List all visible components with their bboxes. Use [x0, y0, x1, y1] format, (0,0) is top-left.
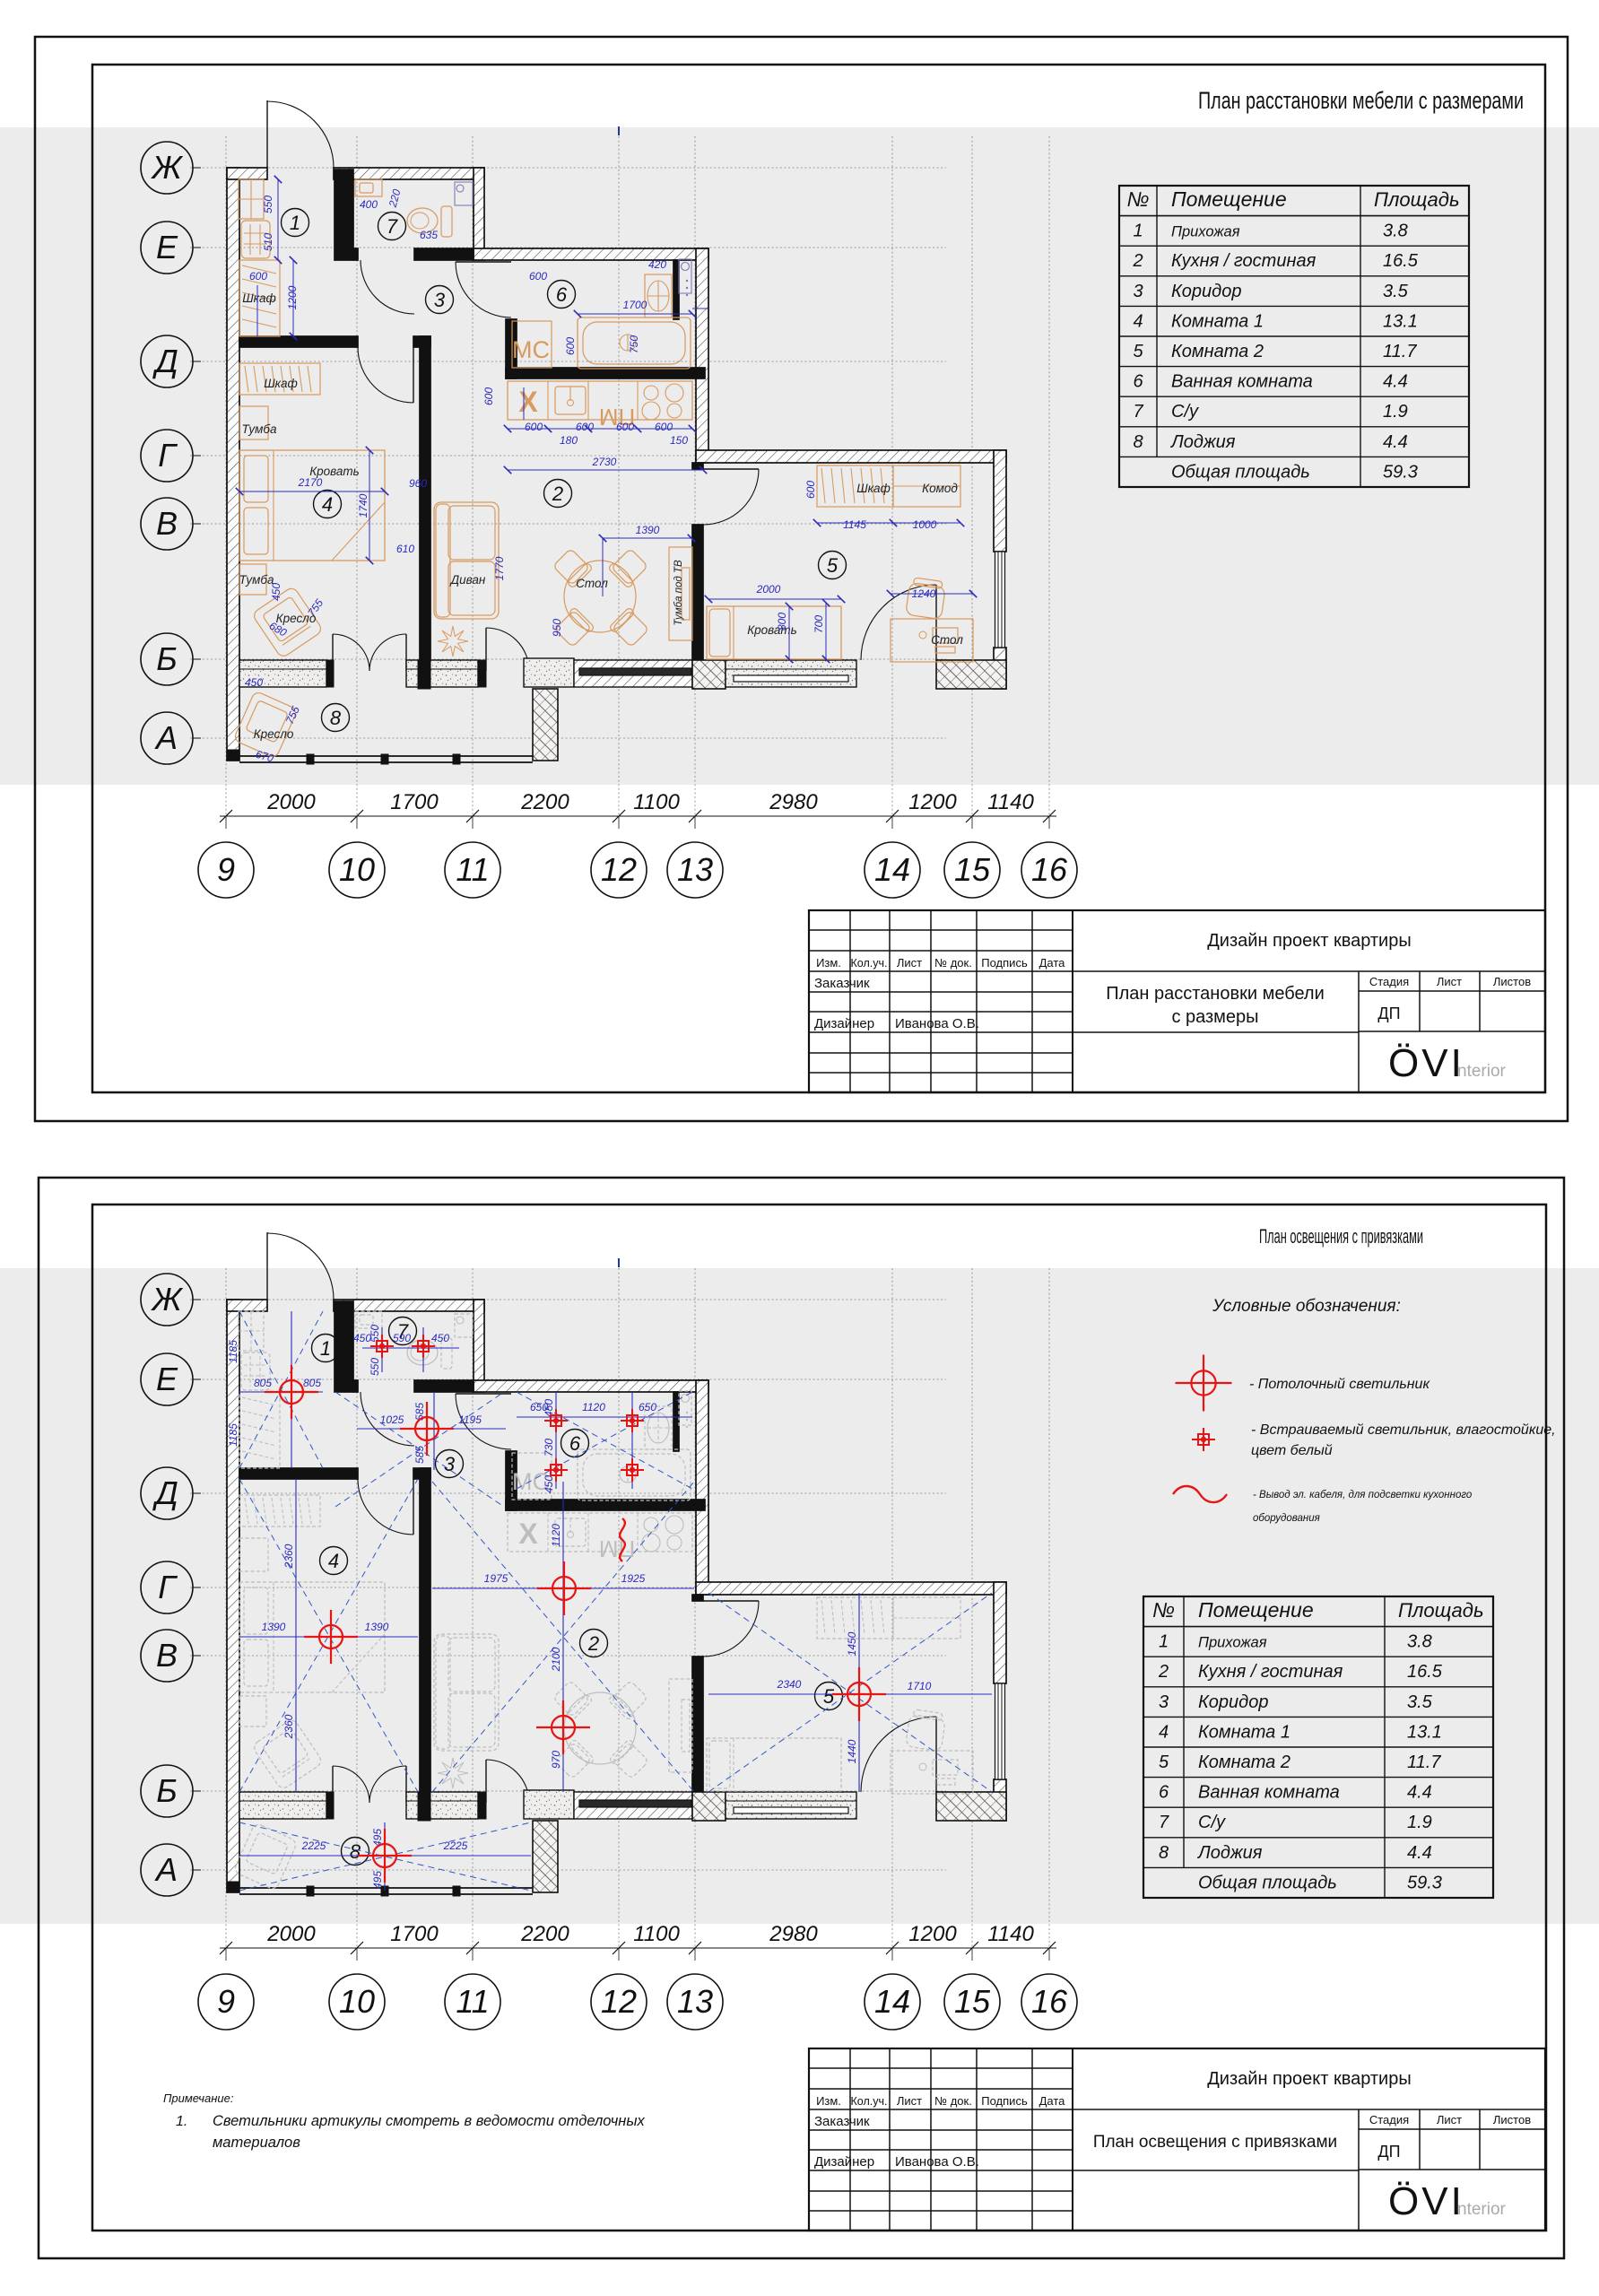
svg-text:Комната 2: Комната 2	[1171, 342, 1264, 361]
svg-text:Дизайн проект квартиры: Дизайн проект квартиры	[1207, 931, 1411, 951]
svg-text:3: 3	[434, 289, 446, 311]
svg-text:Общая площадь: Общая площадь	[1171, 462, 1310, 482]
svg-text:3.5: 3.5	[1383, 282, 1409, 301]
svg-text:2000: 2000	[266, 1922, 316, 1946]
svg-text:2360: 2360	[282, 1544, 295, 1569]
svg-text:Кухня / гостиная: Кухня / гостиная	[1198, 1662, 1343, 1682]
svg-text:450: 450	[543, 1475, 555, 1493]
svg-text:4: 4	[1133, 311, 1143, 331]
svg-text:Листов: Листов	[1493, 2113, 1531, 2126]
svg-text:Кол.уч.: Кол.уч.	[851, 957, 888, 970]
svg-text:Е: Е	[156, 1361, 178, 1397]
svg-text:1: 1	[320, 1337, 331, 1360]
svg-text:Общая площадь: Общая площадь	[1198, 1873, 1337, 1892]
svg-text:2730: 2730	[592, 456, 617, 468]
svg-text:ÖVI: ÖVI	[1388, 1041, 1464, 1085]
svg-text:А: А	[154, 719, 178, 756]
svg-text:2980: 2980	[769, 1922, 818, 1946]
svg-text:Шкаф: Шкаф	[242, 291, 276, 305]
svg-text:1390: 1390	[636, 524, 660, 536]
svg-text:180: 180	[560, 434, 578, 447]
svg-text:Лист: Лист	[897, 2094, 922, 2108]
svg-text:1.9: 1.9	[1407, 1813, 1432, 1832]
svg-text:Б: Б	[156, 1772, 177, 1809]
svg-text:805: 805	[303, 1377, 321, 1389]
svg-text:1185: 1185	[227, 1423, 239, 1447]
svg-text:1100: 1100	[633, 790, 680, 814]
svg-text:Примечание:: Примечание:	[163, 2092, 234, 2105]
svg-text:3: 3	[1159, 1692, 1169, 1712]
svg-text:1200: 1200	[286, 285, 299, 309]
svg-text:550: 550	[369, 1325, 381, 1343]
svg-text:7: 7	[1133, 402, 1143, 422]
svg-text:Прихожая: Прихожая	[1198, 1635, 1267, 1651]
svg-text:Подпись: Подпись	[981, 956, 1028, 970]
svg-text:С/у: С/у	[1198, 1813, 1226, 1832]
svg-text:№: №	[1127, 187, 1150, 211]
svg-text:Коридор: Коридор	[1198, 1692, 1268, 1712]
svg-text:635: 635	[420, 229, 438, 241]
svg-text:600: 600	[804, 481, 817, 499]
svg-text:Д: Д	[152, 343, 178, 379]
svg-text:2000: 2000	[756, 583, 781, 596]
svg-text:4.4: 4.4	[1407, 1783, 1432, 1803]
svg-text:16.5: 16.5	[1407, 1662, 1443, 1682]
svg-text:Заказчик: Заказчик	[814, 976, 870, 991]
svg-text:1740: 1740	[357, 493, 369, 517]
svg-text:Помещение: Помещение	[1198, 1598, 1314, 1622]
svg-text:6: 6	[1159, 1783, 1169, 1803]
svg-text:Площадь: Площадь	[1398, 1599, 1484, 1622]
svg-text:1120: 1120	[582, 1401, 605, 1413]
svg-text:1.: 1.	[176, 2114, 187, 2129]
svg-text:9: 9	[217, 1983, 235, 2020]
svg-text:12: 12	[601, 1983, 637, 2020]
svg-text:План освещения с привязками: План освещения с привязками	[1259, 1225, 1423, 1248]
svg-text:3.5: 3.5	[1407, 1692, 1433, 1712]
svg-text:1390: 1390	[262, 1621, 286, 1633]
svg-text:Стол: Стол	[931, 633, 963, 647]
svg-text:1700: 1700	[623, 299, 647, 311]
svg-text:Б: Б	[156, 640, 177, 677]
svg-text:План расстановки мебели с разм: План расстановки мебели с размерами	[1198, 87, 1524, 114]
svg-text:13: 13	[677, 1983, 713, 2020]
svg-text:650: 650	[639, 1401, 656, 1413]
svg-text:510: 510	[262, 233, 274, 251]
svg-text:6: 6	[569, 1432, 581, 1455]
svg-text:С/у: С/у	[1171, 402, 1199, 422]
svg-text:600: 600	[616, 421, 634, 433]
svg-text:1145: 1145	[843, 518, 866, 531]
svg-text:4.4: 4.4	[1383, 372, 1408, 392]
svg-text:Площадь: Площадь	[1374, 188, 1460, 211]
svg-text:1925: 1925	[621, 1572, 646, 1585]
svg-text:550: 550	[262, 196, 274, 213]
svg-text:Иванова О.В.: Иванова О.В.	[895, 1016, 979, 1031]
svg-text:Комната 1: Комната 1	[1171, 311, 1264, 331]
svg-text:2225: 2225	[301, 1839, 326, 1852]
svg-text:Диван: Диван	[449, 573, 486, 587]
svg-text:Ванная комната: Ванная комната	[1198, 1783, 1340, 1803]
svg-text:№ док.: № док.	[934, 2094, 972, 2108]
svg-text:10: 10	[339, 851, 375, 888]
svg-text:4: 4	[322, 493, 333, 516]
svg-text:Заказчик: Заказчик	[814, 2114, 870, 2129]
svg-text:7: 7	[1159, 1813, 1169, 1832]
svg-text:Стол: Стол	[576, 577, 608, 590]
svg-text:585: 585	[413, 1446, 426, 1464]
svg-text:5: 5	[827, 554, 839, 577]
svg-text:970: 970	[550, 1751, 562, 1769]
svg-text:3.8: 3.8	[1407, 1632, 1432, 1652]
svg-text:Комод: Комод	[922, 482, 958, 495]
svg-text:600: 600	[529, 270, 547, 283]
svg-text:Иванова О.В.: Иванова О.В.	[895, 2154, 979, 2170]
svg-text:Условные обозначения:: Условные обозначения:	[1212, 1297, 1401, 1316]
svg-text:Дата: Дата	[1039, 2094, 1066, 2108]
svg-text:№: №	[1152, 1598, 1175, 1622]
svg-text:2: 2	[1132, 251, 1143, 271]
svg-text:Кресло: Кресло	[254, 727, 294, 741]
svg-text:План освещения с привязками: План освещения с привязками	[1093, 2133, 1337, 2152]
svg-text:Дизайн проект квартиры: Дизайн проект квартиры	[1207, 2069, 1411, 2089]
svg-text:1: 1	[1159, 1632, 1169, 1652]
svg-text:Шкаф: Шкаф	[264, 377, 298, 390]
svg-text:Стадия: Стадия	[1369, 2113, 1409, 2126]
svg-text:МС: МС	[512, 336, 550, 363]
svg-text:nterior: nterior	[1457, 1062, 1507, 1081]
svg-text:2: 2	[552, 483, 563, 505]
svg-text:2170: 2170	[298, 476, 323, 489]
svg-text:1.9: 1.9	[1383, 402, 1408, 422]
svg-text:2: 2	[587, 1632, 599, 1655]
svg-text:550: 550	[369, 1358, 381, 1376]
svg-text:11: 11	[456, 1983, 489, 2020]
svg-text:2: 2	[1158, 1662, 1169, 1682]
svg-text:Лист: Лист	[897, 956, 922, 970]
svg-text:450: 450	[245, 676, 263, 689]
svg-text:материалов: материалов	[213, 2135, 300, 2151]
svg-text:Ж: Ж	[150, 149, 183, 186]
svg-text:1140: 1140	[987, 1922, 1034, 1946]
svg-text:450: 450	[270, 583, 282, 601]
svg-text:1200: 1200	[908, 1922, 957, 1946]
svg-text:2100: 2100	[550, 1647, 562, 1672]
svg-text:2200: 2200	[520, 1922, 569, 1946]
svg-text:оборудования: оборудования	[1253, 1513, 1320, 1524]
svg-text:59.3: 59.3	[1383, 462, 1418, 482]
svg-text:600: 600	[564, 337, 577, 355]
svg-text:План расстановки мебели: План расстановки мебели	[1106, 984, 1325, 1004]
svg-text:Лист: Лист	[1437, 975, 1462, 988]
svg-text:730: 730	[543, 1439, 555, 1457]
svg-text:- Встраиваемый светильник, вла: - Встраиваемый светильник, влагостойкие,	[1251, 1422, 1556, 1438]
svg-text:600: 600	[525, 421, 543, 433]
svg-text:16: 16	[1031, 851, 1068, 888]
svg-text:2340: 2340	[777, 1678, 802, 1691]
svg-text:150: 150	[670, 434, 688, 447]
svg-text:6: 6	[556, 283, 568, 306]
svg-text:Кол.уч.: Кол.уч.	[851, 2095, 888, 2108]
svg-text:1: 1	[1133, 222, 1143, 241]
svg-text:Д: Д	[152, 1474, 178, 1511]
svg-text:2225: 2225	[443, 1839, 468, 1852]
svg-text:11: 11	[456, 851, 489, 888]
svg-text:4.4: 4.4	[1407, 1843, 1432, 1863]
svg-text:2200: 2200	[520, 790, 569, 814]
svg-text:ÖVI: ÖVI	[1388, 2179, 1464, 2223]
svg-text:- Вывод эл. кабеля, для подсве: - Вывод эл. кабеля, для подсветки кухонн…	[1253, 1490, 1473, 1500]
svg-text:610: 610	[396, 543, 414, 555]
svg-text:600: 600	[482, 387, 495, 405]
svg-text:Прихожая: Прихожая	[1171, 224, 1240, 240]
svg-text:1700: 1700	[390, 790, 439, 814]
svg-text:1770: 1770	[493, 556, 506, 580]
svg-text:1195: 1195	[458, 1413, 482, 1426]
svg-text:Лоджия: Лоджия	[1169, 432, 1236, 452]
svg-text:10: 10	[339, 1983, 375, 2020]
svg-text:X: X	[518, 386, 538, 418]
svg-text:9: 9	[217, 851, 235, 888]
svg-text:В: В	[156, 1637, 178, 1674]
svg-text:Комната 1: Комната 1	[1198, 1722, 1290, 1742]
svg-text:800: 800	[776, 613, 788, 631]
svg-text:450: 450	[543, 1399, 555, 1417]
svg-text:Дизайнер: Дизайнер	[814, 1016, 874, 1031]
svg-text:1025: 1025	[380, 1413, 404, 1426]
svg-text:4: 4	[328, 1550, 339, 1572]
svg-text:ДП: ДП	[1377, 1004, 1400, 1022]
svg-text:Изм.: Изм.	[816, 2094, 841, 2108]
svg-text:Лоджия: Лоджия	[1196, 1843, 1263, 1863]
svg-text:Коридор: Коридор	[1171, 282, 1241, 301]
svg-text:цвет белый: цвет белый	[1251, 1443, 1333, 1458]
svg-text:8: 8	[1159, 1843, 1169, 1863]
svg-text:Е: Е	[156, 229, 178, 265]
svg-text:Подпись: Подпись	[981, 2094, 1028, 2108]
svg-text:13.1: 13.1	[1383, 311, 1418, 331]
svg-text:1200: 1200	[908, 790, 957, 814]
svg-text:- Потолочный светильник: - Потолочный светильник	[1249, 1377, 1430, 1392]
svg-text:4.4: 4.4	[1383, 432, 1408, 452]
svg-text:15: 15	[954, 851, 991, 888]
svg-text:ДП: ДП	[1377, 2143, 1400, 2161]
svg-text:2000: 2000	[266, 790, 316, 814]
svg-text:1140: 1140	[987, 790, 1034, 814]
svg-text:Ванная комната: Ванная комната	[1171, 372, 1313, 392]
svg-text:Шкаф: Шкаф	[856, 482, 891, 495]
svg-text:3.8: 3.8	[1383, 222, 1408, 241]
svg-text:14: 14	[874, 1983, 910, 2020]
svg-text:с размеры: с размеры	[1171, 1007, 1258, 1027]
svg-text:1975: 1975	[484, 1572, 508, 1585]
svg-text:950: 950	[551, 619, 563, 637]
svg-text:2980: 2980	[769, 790, 818, 814]
svg-text:1700: 1700	[390, 1922, 439, 1946]
svg-text:Комната 2: Комната 2	[1198, 1752, 1290, 1772]
svg-text:13.1: 13.1	[1407, 1722, 1442, 1742]
svg-text:8: 8	[350, 1840, 361, 1863]
svg-text:400: 400	[360, 198, 378, 211]
svg-text:Светильники артикулы смотреть: Светильники артикулы смотреть в ведомост…	[213, 2113, 645, 2129]
svg-text:12: 12	[601, 851, 637, 888]
svg-text:14: 14	[874, 851, 910, 888]
svg-text:1450: 1450	[846, 1631, 858, 1656]
svg-text:Помещение: Помещение	[1171, 187, 1287, 211]
svg-text:450: 450	[431, 1332, 449, 1344]
svg-text:7: 7	[387, 215, 398, 238]
svg-text:А: А	[154, 1851, 178, 1888]
svg-text:Стадия: Стадия	[1369, 975, 1409, 988]
svg-text:4: 4	[1159, 1722, 1169, 1742]
svg-text:750: 750	[628, 335, 640, 353]
svg-text:15: 15	[954, 1983, 991, 2020]
svg-text:1000: 1000	[913, 518, 937, 531]
svg-text:X: X	[518, 1518, 538, 1550]
svg-text:1: 1	[290, 212, 300, 234]
svg-text:Дата: Дата	[1039, 956, 1066, 970]
svg-text:Кухня / гостиная: Кухня / гостиная	[1171, 251, 1317, 271]
svg-text:1100: 1100	[633, 1922, 680, 1946]
svg-text:11.7: 11.7	[1407, 1752, 1441, 1772]
svg-text:5: 5	[1133, 342, 1143, 361]
svg-text:8: 8	[1133, 432, 1143, 452]
svg-text:600: 600	[249, 270, 267, 283]
svg-text:Изм.: Изм.	[816, 956, 841, 970]
svg-text:16.5: 16.5	[1383, 251, 1419, 271]
svg-text:59.3: 59.3	[1407, 1873, 1442, 1892]
svg-text:13: 13	[677, 851, 713, 888]
svg-text:Тумба: Тумба	[242, 422, 277, 436]
svg-text:600: 600	[655, 421, 673, 433]
svg-text:В: В	[156, 505, 178, 542]
svg-text:3: 3	[1133, 282, 1143, 301]
svg-text:Ж: Ж	[150, 1281, 183, 1318]
svg-text:1120: 1120	[550, 1524, 562, 1547]
svg-text:11.7: 11.7	[1383, 342, 1417, 361]
svg-text:№ док.: № док.	[934, 956, 972, 970]
svg-text:2360: 2360	[282, 1714, 295, 1739]
svg-text:Г: Г	[158, 1569, 178, 1605]
svg-text:805: 805	[254, 1377, 272, 1389]
svg-text:1185: 1185	[227, 1340, 239, 1363]
svg-text:Дизайнер: Дизайнер	[814, 2154, 874, 2170]
svg-text:495: 495	[371, 1871, 384, 1889]
svg-text:590: 590	[393, 1332, 411, 1344]
svg-text:1390: 1390	[365, 1621, 389, 1633]
svg-text:Лист: Лист	[1437, 2113, 1462, 2126]
svg-text:960: 960	[409, 477, 427, 490]
svg-text:5: 5	[1159, 1752, 1169, 1772]
svg-text:6: 6	[1133, 372, 1143, 392]
svg-text:1440: 1440	[846, 1739, 858, 1763]
svg-text:Листов: Листов	[1493, 975, 1531, 988]
svg-text:nterior: nterior	[1457, 2200, 1507, 2219]
svg-text:700: 700	[813, 615, 825, 633]
svg-text:8: 8	[330, 707, 342, 729]
svg-text:1710: 1710	[908, 1680, 932, 1692]
svg-text:Тумба под ТВ: Тумба под ТВ	[673, 560, 684, 626]
svg-text:Г: Г	[158, 437, 178, 474]
svg-text:16: 16	[1031, 1983, 1068, 2020]
svg-text:420: 420	[648, 258, 666, 271]
